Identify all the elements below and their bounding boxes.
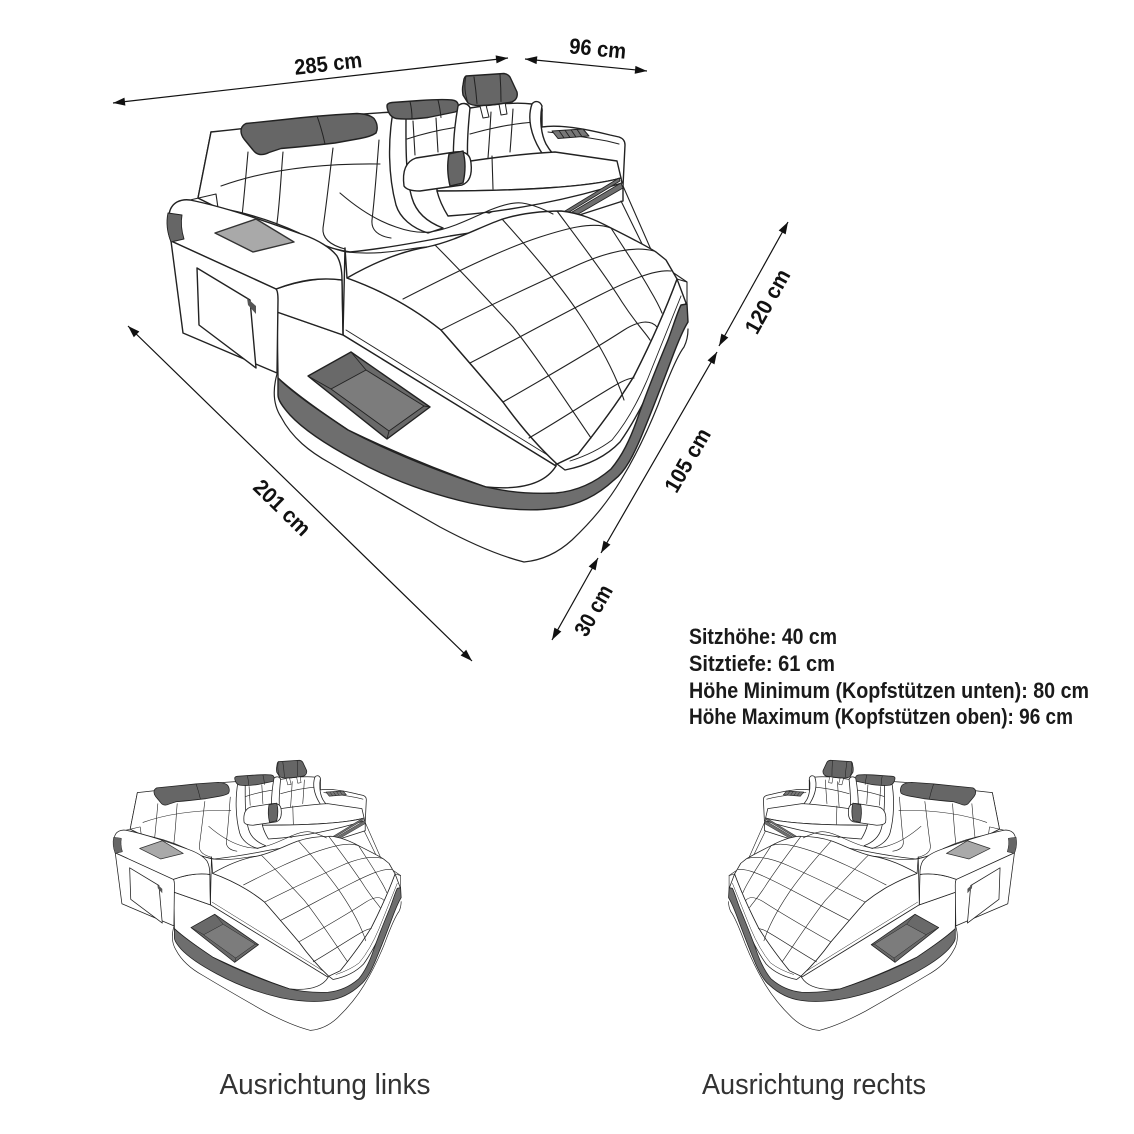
svg-text:201 cm: 201 cm [248,474,316,541]
svg-text:Höhe Minimum (Kopfstützen unte: Höhe Minimum (Kopfstützen unten): 80 cm [689,678,1089,703]
svg-text:30 cm: 30 cm [569,580,618,640]
svg-text:Ausrichtung rechts: Ausrichtung rechts [702,1069,926,1101]
svg-text:285 cm: 285 cm [293,47,363,80]
svg-text:120 cm: 120 cm [740,265,796,338]
svg-text:Sitztiefe: 61 cm: Sitztiefe: 61 cm [689,651,835,676]
svg-text:Sitzhöhe: 40 cm: Sitzhöhe: 40 cm [689,624,837,649]
svg-text:96 cm: 96 cm [568,33,627,63]
svg-text:105 cm: 105 cm [659,424,716,497]
svg-text:Ausrichtung links: Ausrichtung links [220,1069,431,1101]
svg-text:Höhe Maximum (Kopfstützen oben: Höhe Maximum (Kopfstützen oben): 96 cm [689,704,1073,729]
